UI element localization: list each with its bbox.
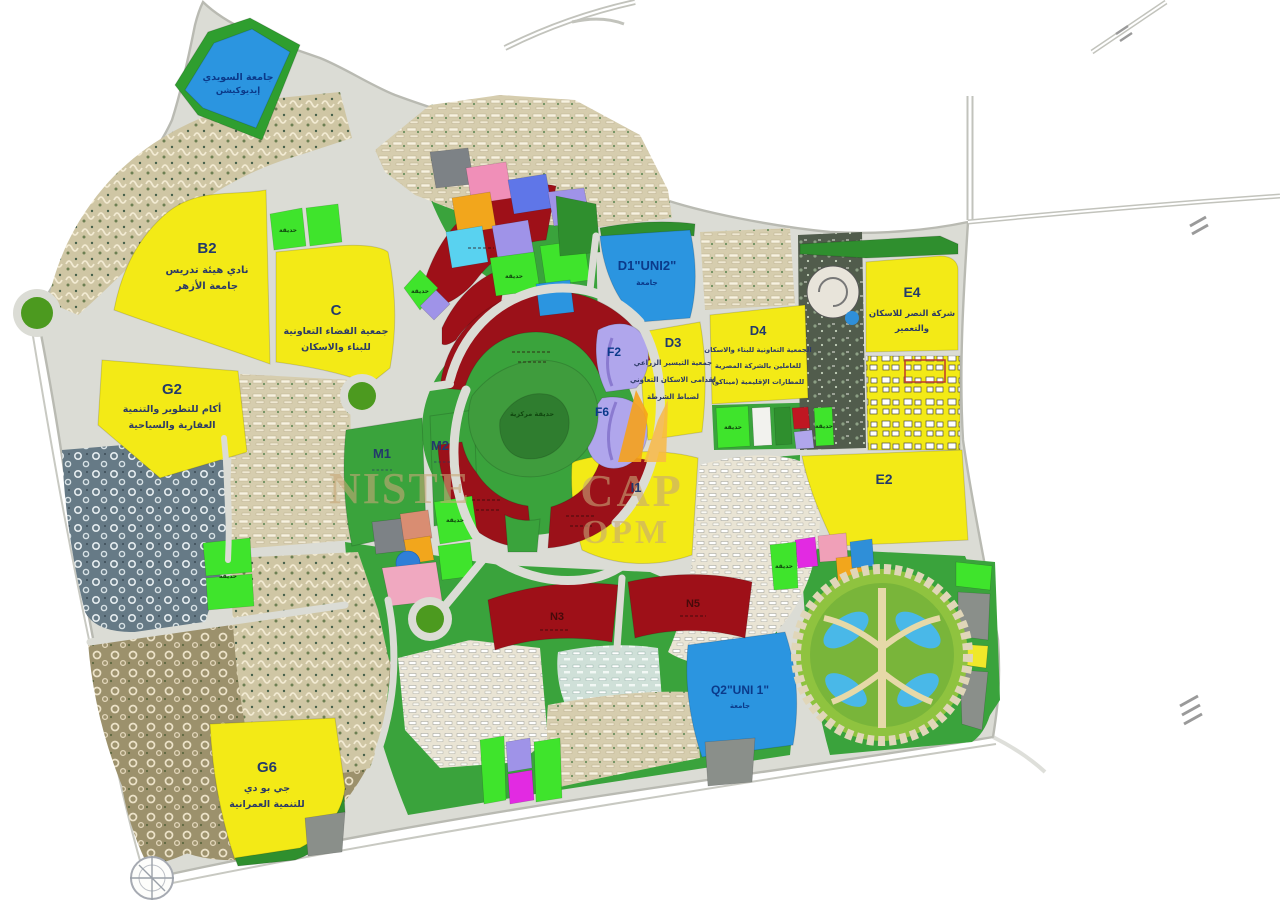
district-d4-sub0: الجمعية التعاونية للبناء والاسكان xyxy=(704,346,811,354)
district-f2-label: F2 xyxy=(607,345,621,359)
district-c-sub0: جمعية الفضاء التعاونية xyxy=(283,326,388,337)
watermark-frag-opm: OPM xyxy=(582,514,670,551)
res-mid-rows xyxy=(228,374,352,550)
district-g6-label: G6 xyxy=(257,759,277,776)
district-e4-grid xyxy=(866,356,960,450)
roundabout-left xyxy=(21,297,53,329)
road-n-strip-gap xyxy=(617,578,622,648)
district-e4-sub1: والتعمير xyxy=(894,324,929,334)
district-m2-label: M2 xyxy=(431,438,449,453)
district-n3-label: N3 xyxy=(550,611,564,623)
hatch-glyph-top xyxy=(1190,217,1208,234)
parcel-bgreen-e1 xyxy=(480,736,506,804)
district-n5-label: N5 xyxy=(686,598,700,610)
parcel-purple-b xyxy=(794,430,814,449)
district-b2-label: B2 xyxy=(197,240,216,257)
district-q2-sub0: جامعة xyxy=(730,702,750,710)
district-e4-sub0: شركة النصر للاسكان xyxy=(869,309,955,319)
district-q2-label: Q2"UNI 1" xyxy=(711,683,769,697)
stub-top xyxy=(505,2,635,48)
parcel-bgreen-e2 xyxy=(534,738,562,802)
district-g6-sub1: للتنمية العمرانية xyxy=(229,799,304,810)
roundabout-south xyxy=(416,605,444,633)
parcel-red-b xyxy=(792,407,810,429)
district-e4-label: E4 xyxy=(903,284,920,300)
parcel-magenta-e xyxy=(508,770,534,804)
parcel-white-b xyxy=(752,407,772,446)
garden-label-1: حديقة xyxy=(279,227,297,234)
district-d3-sub0: جمعية التيسير الزراعي xyxy=(634,359,712,367)
parcel-blue-d xyxy=(850,539,874,568)
district-d4-label: D4 xyxy=(750,323,767,338)
parcel-gray-q2 xyxy=(705,738,755,786)
masterplan-map: NISTE CAP OPM جامعة السويدي إيديوكيشن B2… xyxy=(0,0,1280,905)
district-d3-label: D3 xyxy=(665,335,682,350)
district-g2-sub0: أكام للتطوير والتنمية xyxy=(123,402,221,415)
stub-branch xyxy=(572,19,624,24)
district-g2-sub1: العقارية والسياحية xyxy=(128,420,215,431)
parcel-cyan-a xyxy=(446,226,488,268)
district-d1-label: D1"UNI2" xyxy=(618,258,677,273)
garden-label-7: حديقة xyxy=(446,517,464,524)
stub-bottom-right xyxy=(993,737,1045,772)
district-g2-label: G2 xyxy=(162,381,182,398)
district-c-label: C xyxy=(331,302,342,319)
district-b2-sub1: جامعة الأزهر xyxy=(175,279,238,292)
district-f6-label: F6 xyxy=(595,405,609,419)
parcel-blue-a xyxy=(508,174,552,214)
district-i1-label: I1 xyxy=(631,480,642,495)
watermark-frag-niste: NISTE xyxy=(329,464,471,513)
garden-label-4: حديقة xyxy=(724,424,742,431)
district-g6-sub0: جي بو دي xyxy=(244,783,290,794)
corner-frag-center xyxy=(1092,2,1166,52)
district-d4-sub1: للعاملين بالشركة المصرية xyxy=(715,362,801,370)
parcel-bgreen-r xyxy=(956,562,992,590)
garden-label-5: حديقة xyxy=(815,423,833,430)
district-c-sub1: للبناء والاسكان xyxy=(301,342,371,353)
district-m1-label: M1 xyxy=(373,446,391,461)
district-univ-sub0: إيديوكيشن xyxy=(216,86,260,96)
district-d4-sub2: للمطارات الإقليمية (ميناكو) xyxy=(712,378,804,386)
parcel-magenta-d xyxy=(795,537,818,568)
crystal-pond xyxy=(845,311,859,325)
parcel-gray-bottom xyxy=(305,812,345,856)
garden-label-3: حديقة xyxy=(505,273,523,280)
roundabout-center xyxy=(348,382,376,410)
district-e4 xyxy=(866,256,958,352)
garden-label-8: حديقة xyxy=(219,573,237,580)
district-d1-sub0: جامعة xyxy=(636,278,658,287)
masterplan-svg: NISTE CAP OPM جامعة السويدي إيديوكيشن B2… xyxy=(0,0,1280,905)
district-d3-sub2: لضباط الشرطة xyxy=(647,393,699,401)
crystal-spiral-building xyxy=(807,266,859,318)
parcel-purple-e xyxy=(506,738,532,772)
district-d4 xyxy=(710,305,808,404)
res-teal-maze xyxy=(62,437,227,632)
hatch-glyph-bottom xyxy=(1180,696,1202,724)
district-univ-label: جامعة السويدي xyxy=(203,72,274,83)
parcel-bgreen-b2c2 xyxy=(306,204,342,246)
garden-label-2: حديقة xyxy=(411,288,429,295)
res-topright-grid xyxy=(700,228,795,310)
district-e2-label: E2 xyxy=(875,471,892,487)
district-b2-sub0: نادي هيئة تدريس xyxy=(165,265,248,276)
garden-label-6: حديقة xyxy=(775,563,793,570)
central-park-label: حديقة مركزية xyxy=(510,410,554,418)
ring-green-wedge xyxy=(505,515,540,552)
parcel-dkgreen-b xyxy=(774,407,792,445)
district-d3-sub1: لقدامى الاسكان التعاوني xyxy=(630,376,716,384)
